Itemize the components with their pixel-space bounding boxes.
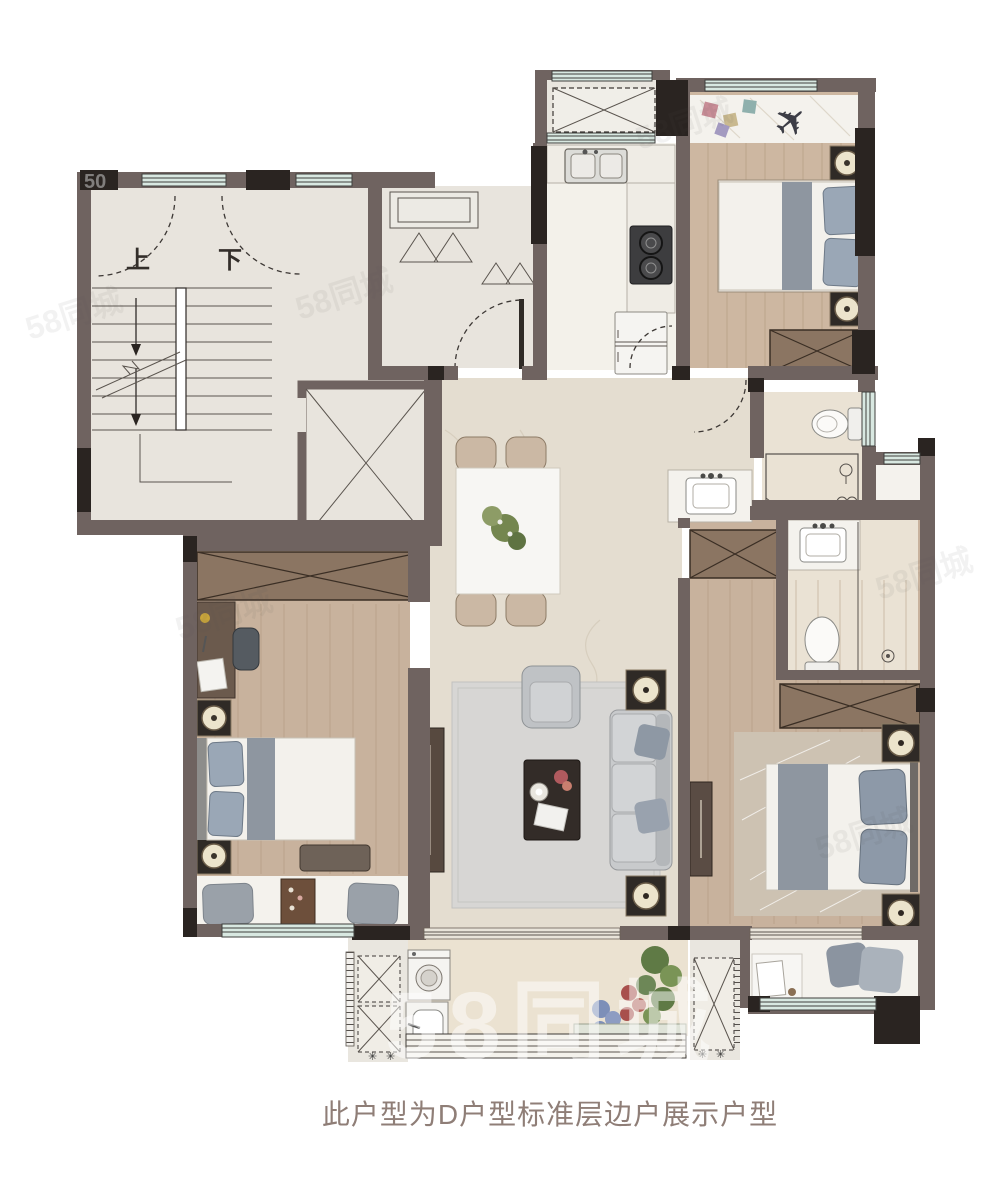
- sofa-pillow-2: [633, 797, 670, 834]
- window-lobby-1: [142, 174, 226, 186]
- elevator: [297, 385, 430, 541]
- guest-bath-floor: [762, 392, 862, 514]
- living-balcony-slider: [424, 928, 620, 939]
- bed2-lamp-2-dot: [211, 853, 217, 859]
- wall-gbath-bottom: [752, 500, 922, 520]
- balcony-book: [756, 961, 785, 998]
- wall-mbalcony-right: [918, 928, 935, 1010]
- column: [183, 536, 197, 562]
- bay-tray-dot1: [289, 888, 294, 893]
- column: [874, 996, 920, 1044]
- mbath-toilet-bowl: [805, 617, 839, 663]
- bed2-lamp-1-dot: [211, 715, 217, 721]
- floorplan-page: 上 下: [0, 0, 1000, 1181]
- entry-door-leaf: [519, 299, 524, 369]
- fan-icon: ✳: [368, 1051, 377, 1063]
- kids-bed-runner: [782, 182, 812, 290]
- window-bay-niche: [884, 453, 920, 464]
- coffee-cup: [536, 789, 543, 796]
- bay-tray-dot3: [290, 906, 295, 911]
- balcony-pillow-2: [858, 946, 904, 994]
- wall-kbalcony-left: [535, 72, 547, 143]
- washer-knob: [412, 952, 416, 956]
- column: [183, 908, 197, 937]
- bed2-pillow-2: [208, 791, 244, 837]
- sink-faucet-dot: [583, 150, 588, 155]
- window-master-balcony: [760, 998, 876, 1010]
- sofa-pillow-1: [633, 723, 671, 761]
- sink-faucet-dot2: [594, 150, 598, 154]
- toy-block-teal: [742, 99, 757, 114]
- floorplan-drawing: 上 下: [0, 0, 1000, 1181]
- vanity-faucet-1: [701, 474, 706, 479]
- wall-mbath-left: [776, 520, 788, 678]
- sink-basin-left: [571, 154, 595, 178]
- plant-flower-dot-1: [498, 520, 503, 525]
- column: [668, 926, 690, 940]
- wall-entry-bottom-left: [368, 366, 458, 380]
- column: [918, 438, 935, 456]
- column: [748, 378, 764, 392]
- side-lamp-1-dot: [643, 687, 649, 693]
- mbath-faucet-2: [820, 523, 826, 529]
- column: [855, 128, 875, 256]
- kids-lamp-1-dot: [844, 160, 850, 166]
- bed2-foot-bench: [300, 845, 370, 871]
- bed2-runner: [247, 738, 275, 840]
- wall-master-bottom-b: [862, 926, 920, 940]
- wall-master-left-a: [678, 518, 690, 528]
- master-lamp-2-dot: [898, 910, 904, 916]
- column: [246, 170, 290, 190]
- vanity-faucet-3: [718, 474, 723, 479]
- sink-basin-right: [600, 154, 622, 178]
- window-kids-top: [705, 80, 817, 91]
- column: [77, 448, 91, 512]
- window-kbalcony-top: [552, 71, 652, 81]
- living-room: [424, 666, 672, 916]
- armchair-seat: [530, 682, 572, 722]
- mbath-sink: [800, 528, 846, 562]
- balcony-cup: [788, 988, 796, 996]
- wall-lobby-bottom: [77, 520, 433, 535]
- dining-chair-4: [506, 592, 546, 626]
- column: [531, 146, 547, 244]
- bed2-desk-chair: [233, 628, 259, 670]
- mbath-drain-dot: [886, 654, 890, 658]
- plant-flower-dot-2: [508, 532, 513, 537]
- column: [428, 366, 444, 380]
- bay-cushion-1: [202, 883, 253, 925]
- window-lobby-2: [296, 174, 352, 186]
- column: [352, 926, 410, 940]
- side-lamp-2-dot: [643, 893, 649, 899]
- column: [916, 688, 935, 712]
- wall-mbath-bottom: [776, 670, 922, 680]
- burner-2: [640, 257, 662, 279]
- stair-down-label: 下: [218, 247, 242, 274]
- stair-up-label: 上: [126, 247, 150, 274]
- column: [852, 330, 875, 374]
- dining-chair-2: [506, 437, 546, 471]
- caption-text: 此户型为D户型标准层边户展示户型: [322, 1099, 778, 1130]
- louver-left: [346, 952, 354, 1046]
- bay-cushion-2: [347, 883, 399, 926]
- table-flowers-2: [562, 781, 572, 791]
- watermark-corner: 50: [84, 171, 106, 193]
- bay-tray: [281, 879, 315, 925]
- wall-bed2-left: [183, 540, 197, 930]
- window-gbath-right: [862, 392, 875, 446]
- wall-master-left-b: [678, 578, 690, 928]
- stair-center-rail: [176, 288, 186, 430]
- guest-toilet-tank: [848, 408, 862, 440]
- column: [672, 366, 690, 380]
- bed2-pillow-1: [208, 741, 244, 787]
- corridor-vanity: [668, 470, 752, 522]
- master-balcony-slider: [750, 928, 862, 939]
- window-bed2-bay: [222, 924, 354, 937]
- master-lamp-1-dot: [898, 740, 904, 746]
- wall-bed2-right-a: [408, 550, 430, 602]
- dining-chair-1: [456, 437, 496, 471]
- mbath-faucet-1: [813, 524, 818, 529]
- wall-elevator-dining: [424, 378, 442, 546]
- mbath-faucet-3: [830, 524, 835, 529]
- wall-bed2-top: [183, 535, 430, 551]
- vanity-faucet-2: [708, 473, 714, 479]
- desk-papers: [197, 658, 227, 691]
- dining-area: [456, 437, 560, 626]
- watermark-large: 58同城: [385, 973, 721, 1079]
- entry-cabinet: [390, 192, 478, 228]
- wall-bed2-right-b: [408, 668, 430, 928]
- refrigerator: [615, 312, 667, 374]
- bed2-headboard: [197, 738, 207, 840]
- kids-lamp-2-dot: [844, 306, 850, 312]
- burner-1: [640, 232, 662, 254]
- master-bed-runner: [778, 764, 828, 890]
- bay-tray-dot2: [298, 896, 303, 901]
- elevator-door-gap: [297, 398, 306, 432]
- dining-chair-3: [456, 592, 496, 626]
